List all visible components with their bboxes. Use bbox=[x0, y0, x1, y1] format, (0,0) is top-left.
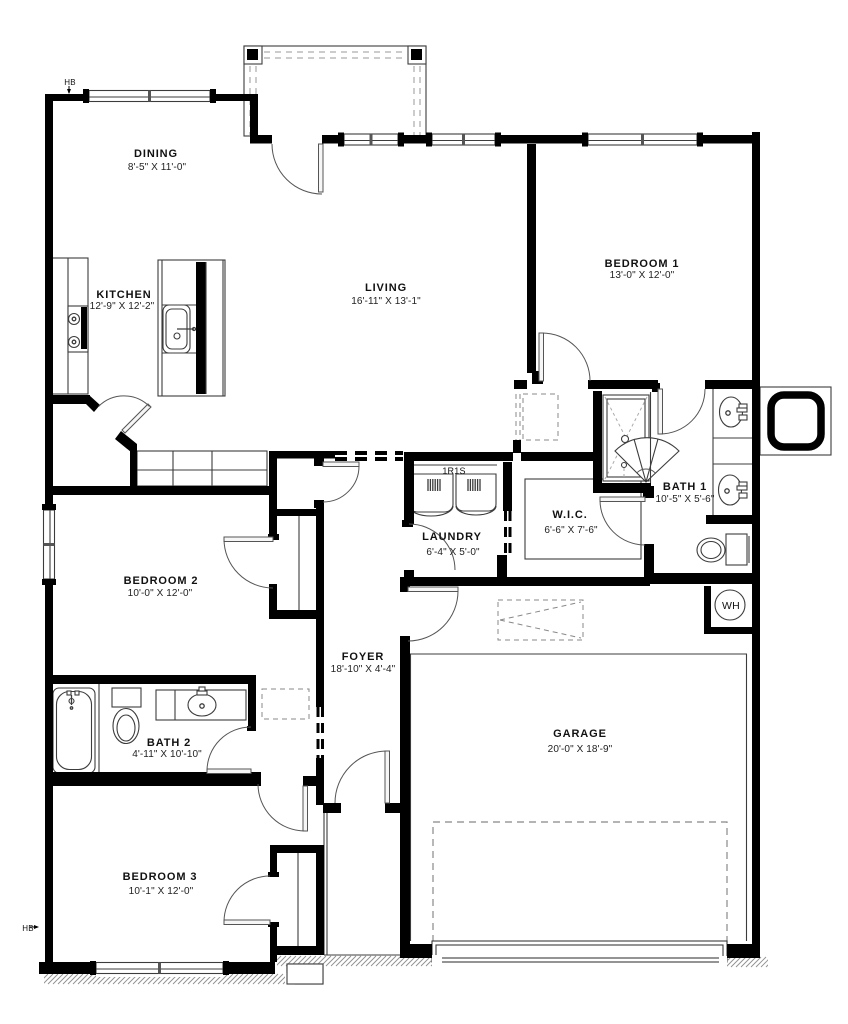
svg-text:HB: HB bbox=[22, 924, 34, 933]
svg-text:10'-0" X 12'-0": 10'-0" X 12'-0" bbox=[128, 588, 193, 599]
svg-text:18'-10" X 4'-4": 18'-10" X 4'-4" bbox=[331, 664, 396, 675]
svg-text:LAUNDRY: LAUNDRY bbox=[422, 531, 482, 543]
svg-text:10'-1" X 12'-0": 10'-1" X 12'-0" bbox=[129, 886, 194, 897]
svg-text:WH: WH bbox=[722, 600, 740, 612]
svg-text:20'-0" X 18'-9": 20'-0" X 18'-9" bbox=[548, 744, 613, 755]
svg-text:BEDROOM 2: BEDROOM 2 bbox=[124, 575, 199, 587]
svg-text:6'-4" X 5'-0": 6'-4" X 5'-0" bbox=[426, 547, 480, 558]
svg-text:6'-6" X 7'-6": 6'-6" X 7'-6" bbox=[544, 525, 598, 536]
svg-text:8'-5" X 11'-0": 8'-5" X 11'-0" bbox=[128, 162, 187, 173]
svg-text:10'-5" X 5'-6": 10'-5" X 5'-6" bbox=[655, 494, 714, 505]
svg-text:W.I.C.: W.I.C. bbox=[552, 509, 587, 521]
svg-text:HB: HB bbox=[64, 78, 76, 87]
svg-text:BEDROOM 3: BEDROOM 3 bbox=[123, 871, 198, 883]
svg-text:DINING: DINING bbox=[134, 148, 178, 160]
svg-text:BATH 2: BATH 2 bbox=[147, 737, 191, 749]
svg-text:LIVING: LIVING bbox=[365, 282, 407, 294]
svg-text:1R1S: 1R1S bbox=[442, 466, 465, 476]
svg-text:BEDROOM 1: BEDROOM 1 bbox=[605, 258, 680, 270]
svg-text:12'-9" X 12'-2": 12'-9" X 12'-2" bbox=[90, 301, 155, 312]
svg-text:KITCHEN: KITCHEN bbox=[96, 289, 151, 301]
svg-text:BATH 1: BATH 1 bbox=[663, 481, 707, 493]
svg-text:16'-11" X 13'-1": 16'-11" X 13'-1" bbox=[351, 296, 421, 307]
svg-text:13'-0" X 12'-0": 13'-0" X 12'-0" bbox=[610, 270, 675, 281]
svg-text:GARAGE: GARAGE bbox=[553, 728, 607, 740]
svg-text:FOYER: FOYER bbox=[342, 651, 384, 663]
svg-text:4'-11" X 10'-10": 4'-11" X 10'-10" bbox=[132, 749, 202, 760]
